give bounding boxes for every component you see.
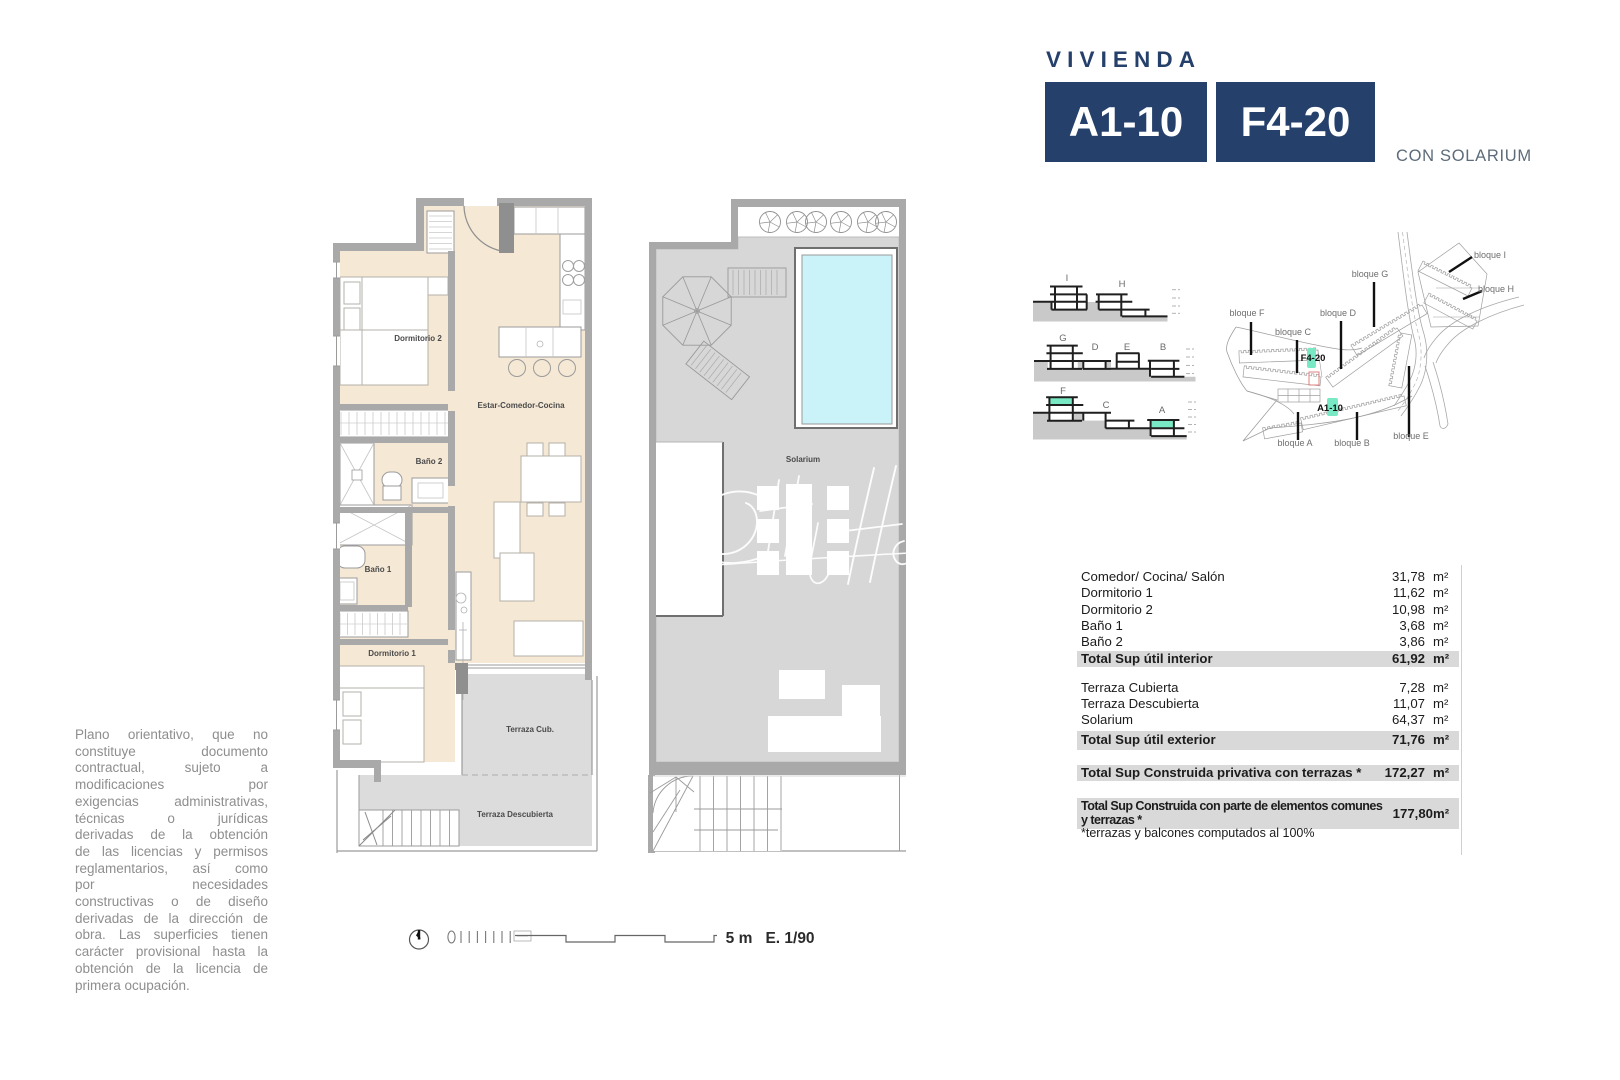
svg-text:G: G: [1059, 333, 1066, 344]
svg-text:E. 1/90: E. 1/90: [765, 930, 814, 947]
svg-text:Solarium: Solarium: [786, 455, 820, 464]
svg-text:Terraza Descubierta: Terraza Descubierta: [477, 810, 553, 819]
svg-text:bloque I: bloque I: [1474, 250, 1506, 260]
svg-text:Baño 1: Baño 1: [365, 565, 392, 574]
svg-text:Dormitorio 1: Dormitorio 1: [368, 649, 416, 658]
svg-text:Dormitorio 2: Dormitorio 2: [394, 334, 442, 343]
svg-text:Baño 2: Baño 2: [416, 457, 443, 466]
svg-text:I: I: [1066, 273, 1069, 284]
svg-text:F: F: [1060, 386, 1066, 397]
svg-text:bloque H: bloque H: [1478, 284, 1514, 294]
svg-text:5 m: 5 m: [726, 930, 753, 947]
svg-text:Terraza Cub.: Terraza Cub.: [506, 725, 554, 734]
svg-text:Estar-Comedor-Cocina: Estar-Comedor-Cocina: [477, 401, 565, 410]
